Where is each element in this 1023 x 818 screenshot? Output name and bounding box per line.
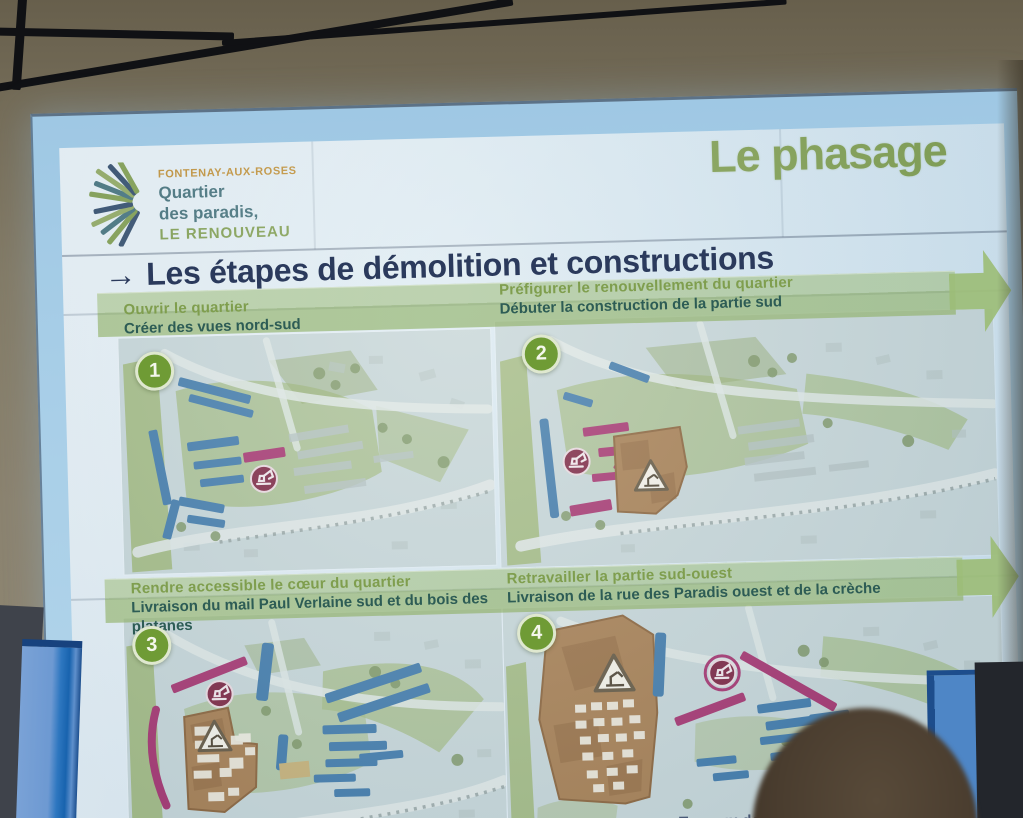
- ceiling-beam: [0, 27, 234, 40]
- project-logo: FONTENAY-AUX-ROSES Quartier des paradis,…: [86, 158, 299, 247]
- heading-arrow-icon: →: [104, 256, 137, 293]
- aerial-map: [124, 609, 509, 818]
- wall-seam: [311, 141, 316, 249]
- laptop-screen-left: [16, 639, 83, 818]
- logo-brand: FONTENAY-AUX-ROSES: [158, 166, 297, 182]
- logo-district-line1: Quartier: [158, 181, 297, 203]
- phase-1-map: 1: [118, 329, 496, 575]
- slide-title: Le phasage: [708, 125, 947, 183]
- wall-shadow: [997, 60, 1023, 672]
- logo-district-line2: des paradis,: [159, 202, 298, 224]
- conference-room-photo: FONTENAY-AUX-ROSES Quartier des paradis,…: [0, 0, 1023, 818]
- monitor-back-right: [975, 662, 1023, 818]
- logo-fan-icon: [86, 162, 152, 248]
- logo-subtitle: LE RENOUVEAU: [159, 223, 298, 243]
- phase-3-map: 3: [124, 609, 509, 818]
- phase-2-map: 2: [495, 309, 999, 568]
- demolition-badge-icon: [563, 448, 590, 475]
- phase-3-caption: Rendre accessible le cœur du quartier Li…: [130, 565, 492, 637]
- demolition-badge-icon: [705, 655, 740, 690]
- aerial-map: [495, 309, 999, 568]
- aerial-map: [118, 329, 496, 575]
- demolition-badge-icon: [206, 681, 233, 708]
- demolition-badge-icon: [251, 466, 278, 493]
- ceiling-beam: [12, 0, 28, 90]
- ceiling-beam: [0, 0, 513, 92]
